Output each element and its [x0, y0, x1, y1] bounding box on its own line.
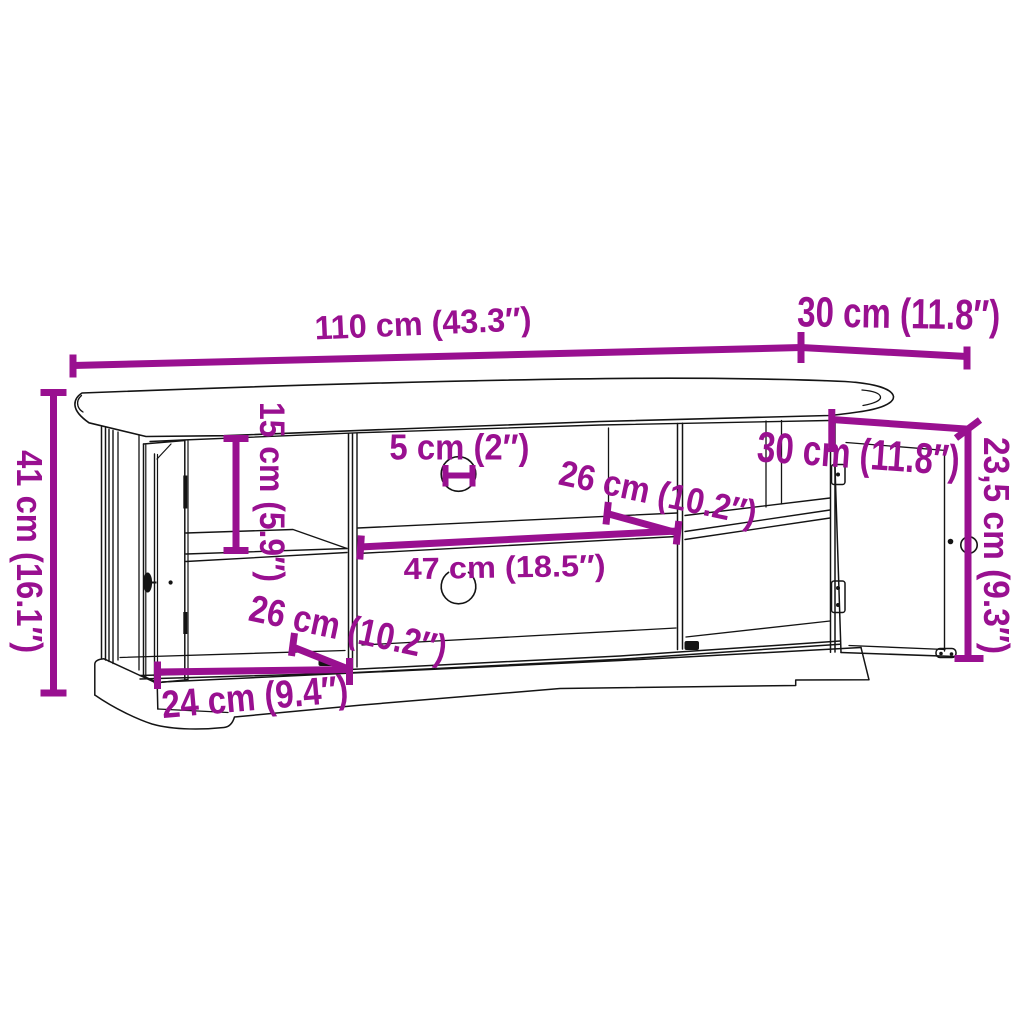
svg-text:47 cm (18.5″): 47 cm (18.5″) — [403, 549, 606, 587]
svg-text:30 cm (11.8″): 30 cm (11.8″) — [797, 289, 1001, 340]
svg-text:41 cm (16.1″): 41 cm (16.1″) — [9, 450, 50, 653]
svg-text:15 cm (5.9″): 15 cm (5.9″) — [252, 402, 291, 582]
svg-text:23,5 cm (9.3″): 23,5 cm (9.3″) — [976, 437, 1017, 654]
svg-text:5 cm (2″): 5 cm (2″) — [389, 427, 529, 468]
